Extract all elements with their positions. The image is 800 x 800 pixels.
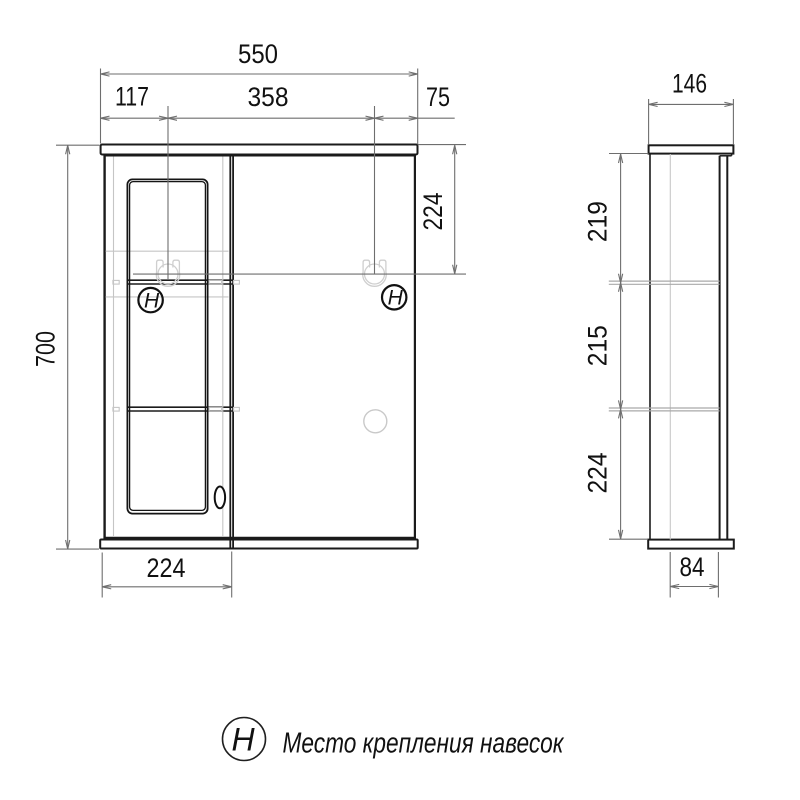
- svg-text:219: 219: [583, 201, 613, 242]
- svg-text:224: 224: [583, 453, 613, 494]
- svg-text:H: H: [232, 722, 256, 758]
- svg-text:117: 117: [115, 82, 149, 112]
- svg-text:H: H: [388, 287, 404, 310]
- svg-text:146: 146: [672, 69, 707, 99]
- svg-text:H: H: [144, 290, 160, 313]
- svg-text:224: 224: [418, 193, 448, 231]
- svg-text:224: 224: [147, 553, 186, 583]
- svg-text:215: 215: [583, 325, 613, 366]
- svg-text:Место крепления навесок: Место крепления навесок: [283, 728, 565, 760]
- svg-text:700: 700: [30, 331, 60, 367]
- svg-text:84: 84: [680, 552, 705, 582]
- svg-text:75: 75: [426, 82, 450, 112]
- svg-text:550: 550: [238, 39, 278, 69]
- svg-text:358: 358: [248, 82, 289, 112]
